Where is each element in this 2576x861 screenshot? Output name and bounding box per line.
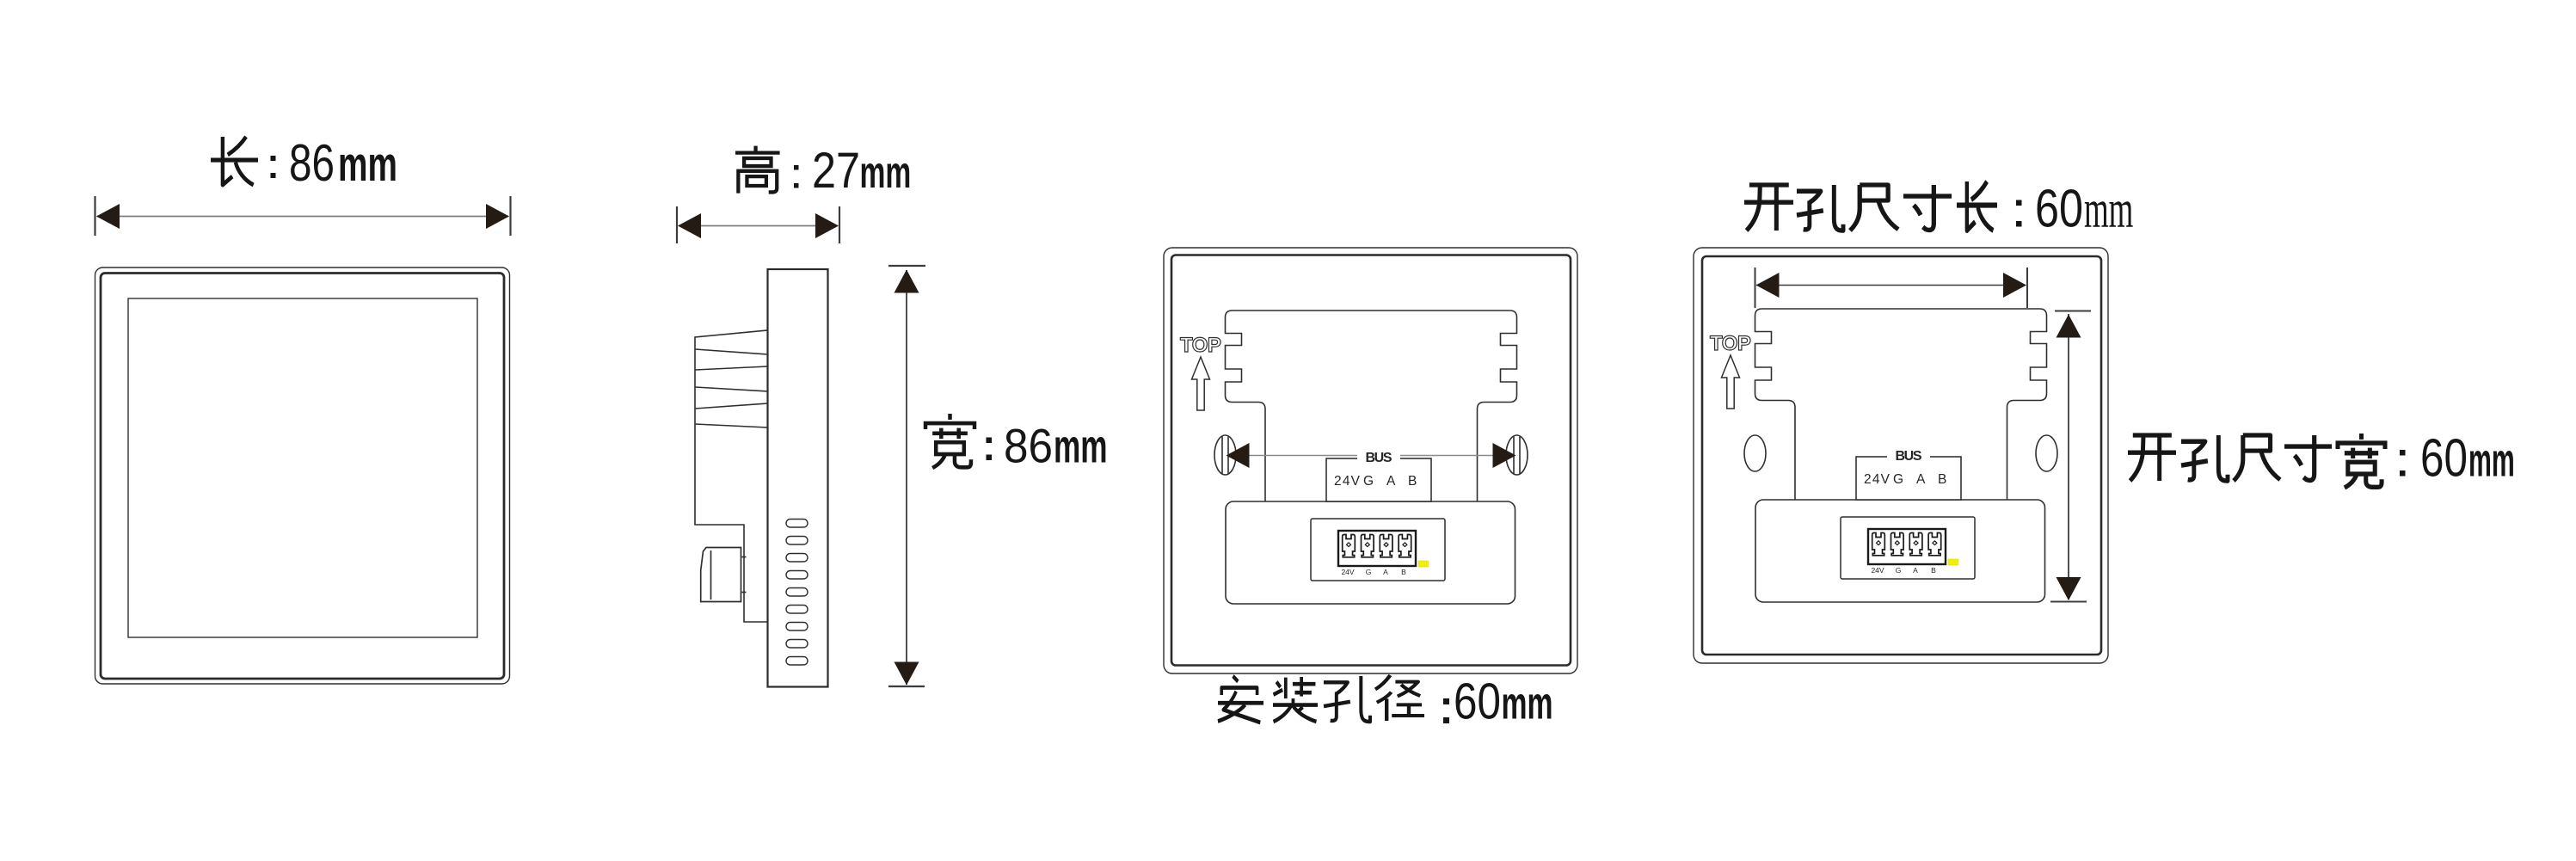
svg-text:86: 86 — [1004, 419, 1053, 473]
svg-text:mm: mm — [1502, 679, 1553, 729]
svg-text:86: 86 — [289, 134, 335, 192]
svg-text:60: 60 — [1454, 673, 1501, 730]
svg-text:mm: mm — [1054, 419, 1108, 472]
svg-text:mm: mm — [2084, 180, 2133, 239]
svg-text:mm: mm — [338, 138, 397, 192]
svg-text:BUS: BUS — [1366, 451, 1393, 465]
svg-text:mm: mm — [860, 148, 912, 198]
svg-text:mm: mm — [2468, 434, 2515, 487]
svg-text:27: 27 — [812, 143, 860, 199]
svg-text:60: 60 — [2420, 429, 2468, 489]
svg-text:60: 60 — [2035, 180, 2083, 239]
